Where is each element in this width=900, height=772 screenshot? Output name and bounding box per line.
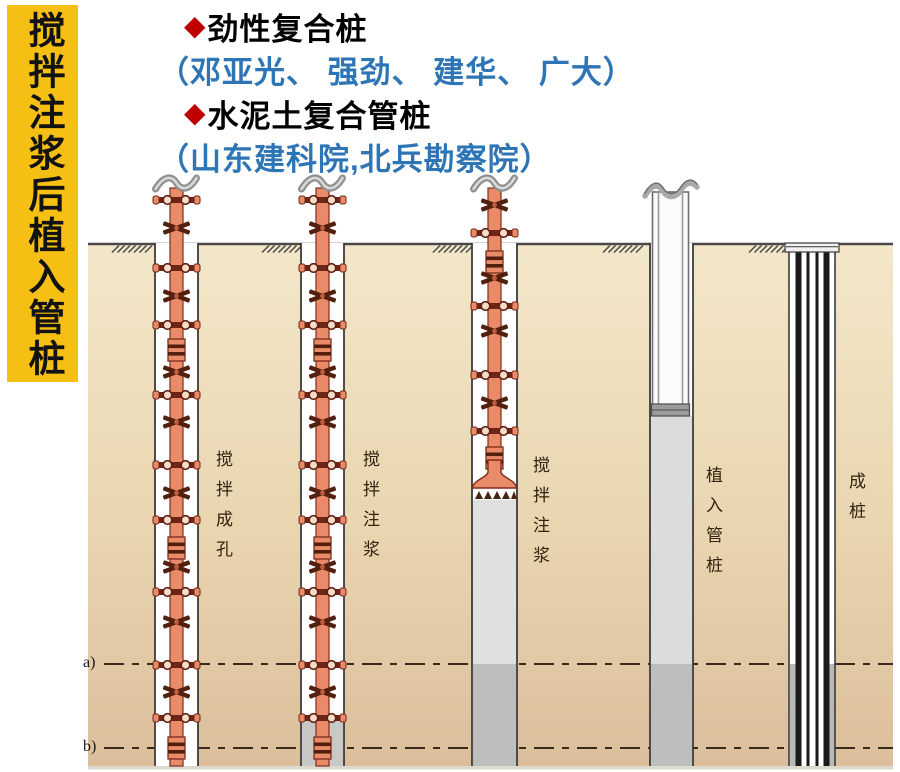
bullet-item-2-subtitle: （山东建科院,北兵勘察院） — [158, 135, 635, 178]
stage-label-4: 植入管桩 — [704, 466, 721, 586]
pile-stage-5-completed — [785, 243, 839, 766]
slide: 搅拌注浆后植入管桩 ◆ 劲性复合桩 （邓亚光、 强劲、 建华、 广大） ◆ 水泥… — [0, 0, 900, 772]
depth-marker-a: a) — [83, 655, 95, 671]
stage-label-5: 成桩 — [847, 472, 864, 532]
bullet-item-1-title: 劲性复合桩 — [208, 4, 368, 49]
diagram-bottom-edge — [88, 766, 893, 770]
pile-stage-4-pipe-insertion — [645, 180, 697, 766]
bullet-item-1-subtitle: （邓亚光、 强劲、 建华、 广大） — [158, 48, 635, 91]
pile-cap — [785, 243, 839, 252]
diamond-bullet-icon: ◆ — [184, 99, 206, 127]
bullet-item-2: ◆ 水泥土复合管桩 — [184, 91, 635, 135]
stage-label-2: 搅拌注浆 — [361, 450, 378, 570]
title-banner: 搅拌注浆后植入管桩 — [7, 5, 78, 382]
stage-label-3: 搅拌注浆 — [531, 456, 548, 576]
stage-label-1: 搅拌成孔 — [214, 450, 231, 570]
pile-stage-1-drilling — [153, 178, 200, 766]
header: ◆ 劲性复合桩 （邓亚光、 强劲、 建华、 广大） ◆ 水泥土复合管桩 （山东建… — [158, 4, 635, 178]
depth-marker-b: b) — [83, 739, 96, 755]
pile-stage-2-grouting — [299, 178, 346, 766]
bullet-item-1: ◆ 劲性复合桩 — [184, 4, 635, 48]
bullet-item-2-title: 水泥土复合管桩 — [208, 91, 432, 136]
diamond-bullet-icon: ◆ — [184, 12, 206, 40]
banner-text: 搅拌注浆后植入管桩 — [24, 11, 61, 382]
pile-stage-3-grouting-withdrawal — [471, 178, 518, 766]
